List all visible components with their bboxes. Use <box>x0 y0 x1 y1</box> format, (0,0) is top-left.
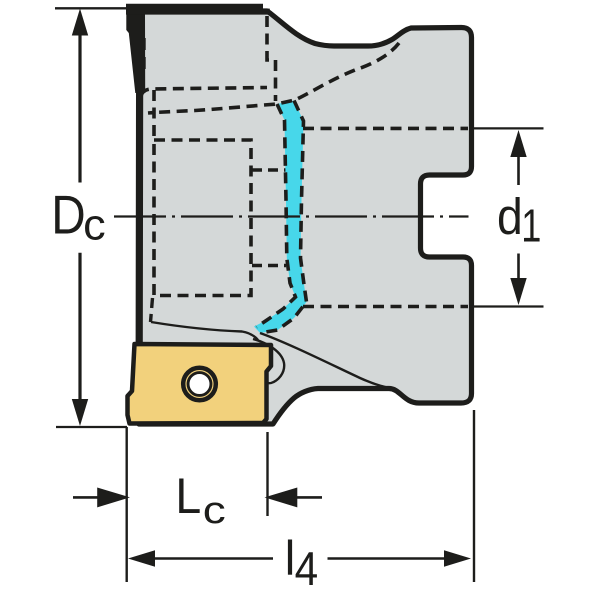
svg-text:L: L <box>175 469 201 525</box>
svg-text:d: d <box>497 189 523 245</box>
svg-text:c: c <box>203 489 226 531</box>
svg-text:D: D <box>51 183 85 245</box>
svg-text:c: c <box>83 201 106 249</box>
svg-text:4: 4 <box>295 544 319 596</box>
svg-text:1: 1 <box>521 200 541 251</box>
